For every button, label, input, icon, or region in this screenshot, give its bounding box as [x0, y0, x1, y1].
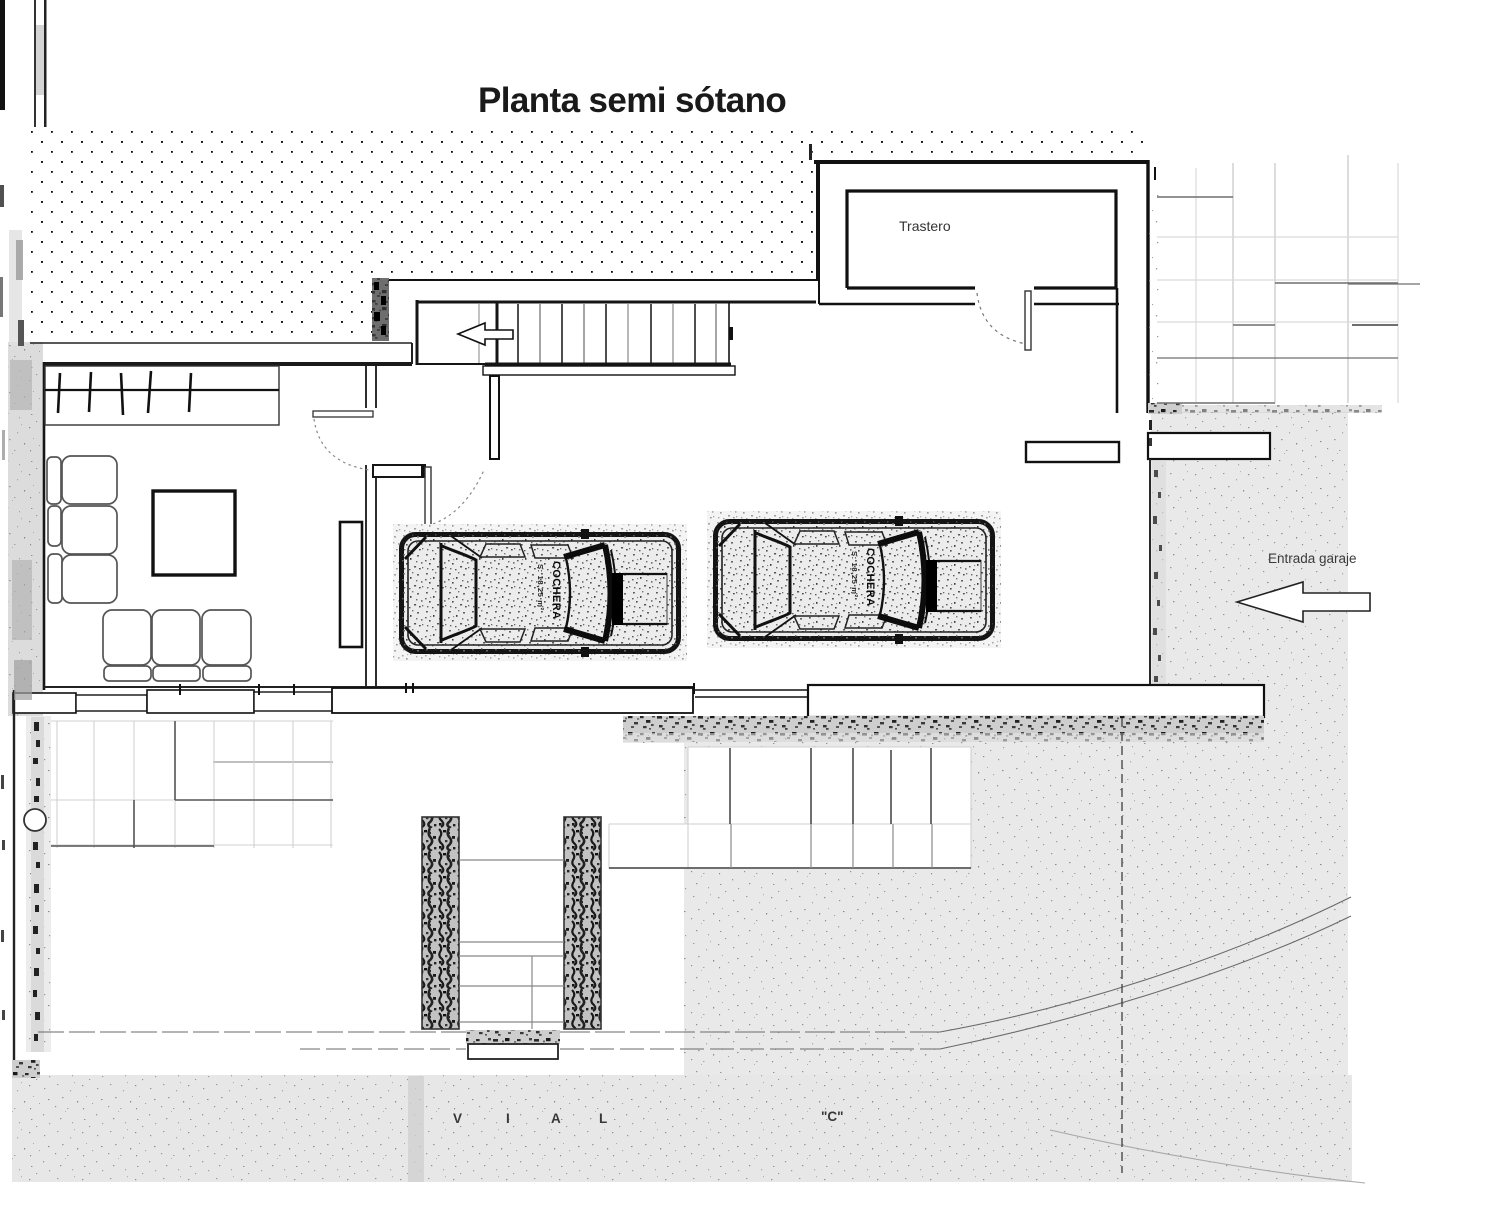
- svg-text:Entrada garaje: Entrada garaje: [1268, 551, 1357, 566]
- svg-text:"C": "C": [821, 1109, 844, 1124]
- svg-text:A: A: [551, 1111, 561, 1126]
- svg-text:Trastero: Trastero: [899, 218, 951, 234]
- svg-text:COCHERA: COCHERA: [550, 561, 562, 619]
- svg-text:Planta semi sótano: Planta semi sótano: [478, 81, 786, 120]
- svg-text:V: V: [453, 1111, 462, 1126]
- svg-text:S: 18,25 m²: S: 18,25 m²: [536, 564, 545, 611]
- svg-text:L: L: [599, 1111, 607, 1126]
- svg-text:I: I: [506, 1111, 510, 1126]
